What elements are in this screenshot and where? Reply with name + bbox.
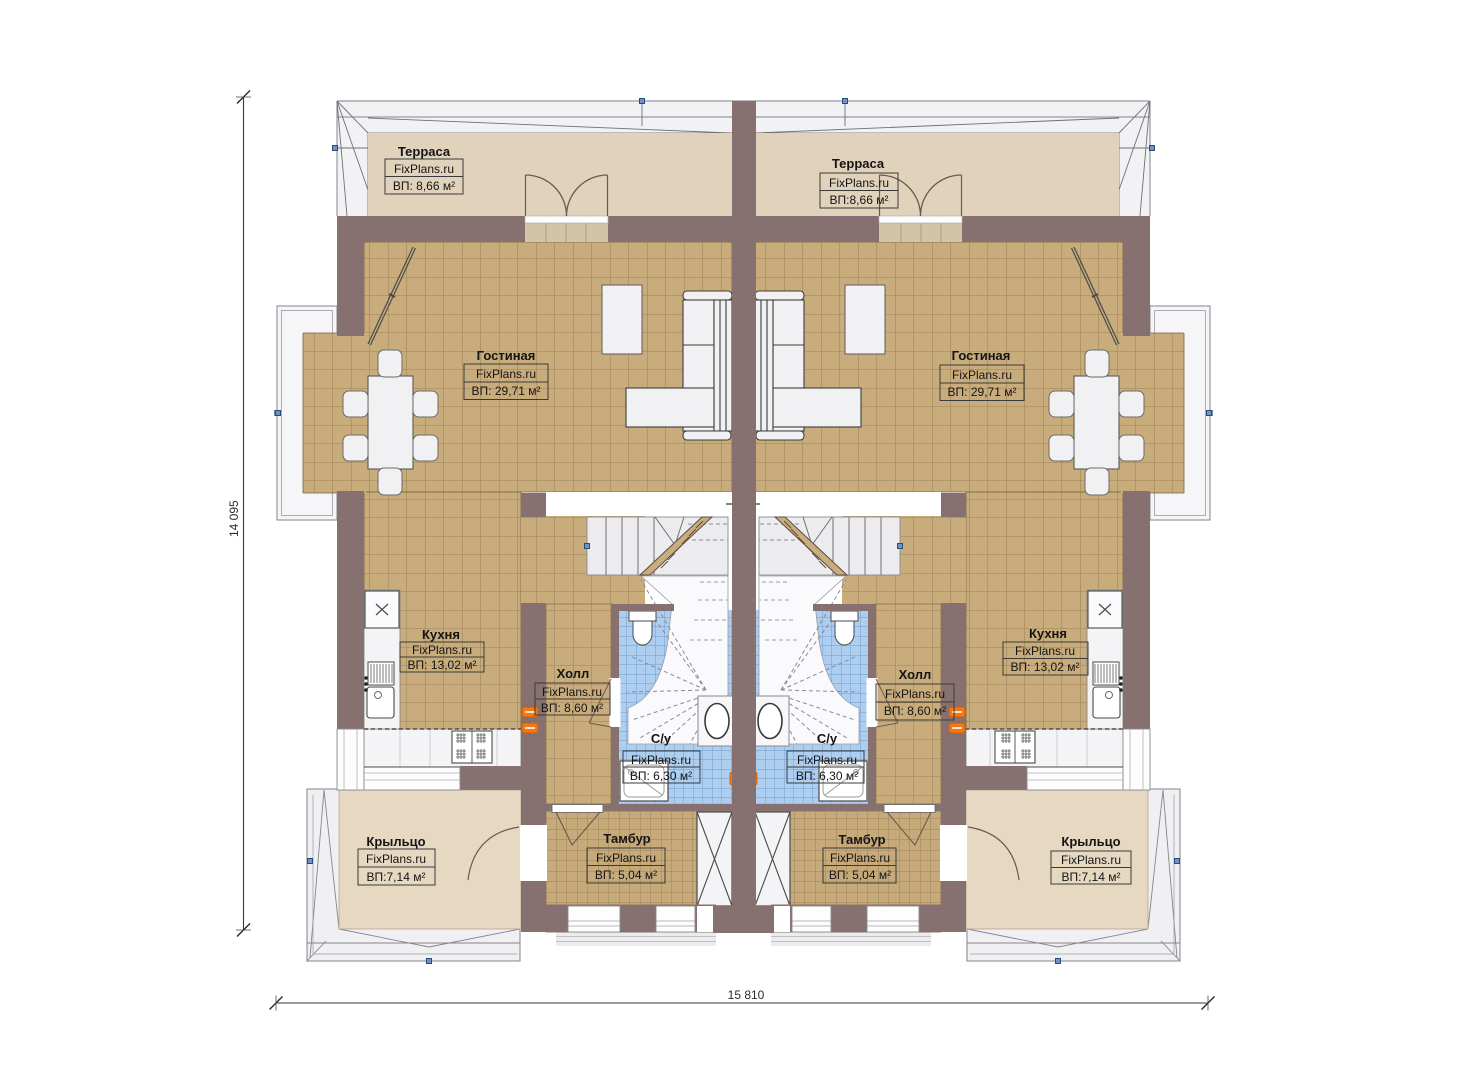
svg-text:ВП: 13,02 м²: ВП: 13,02 м² — [1011, 660, 1080, 674]
svg-text:Кухня: Кухня — [422, 627, 460, 642]
svg-text:Крыльцо: Крыльцо — [366, 834, 425, 849]
svg-text:Холл: Холл — [557, 666, 590, 681]
svg-text:ВП: 5,04 м²: ВП: 5,04 м² — [595, 868, 657, 882]
svg-text:FixPlans.ru: FixPlans.ru — [885, 687, 945, 701]
svg-text:Тамбур: Тамбур — [838, 832, 885, 847]
svg-text:FixPlans.ru: FixPlans.ru — [1015, 644, 1075, 658]
svg-text:ВП: 29,71 м²: ВП: 29,71 м² — [472, 384, 541, 398]
svg-text:FixPlans.ru: FixPlans.ru — [476, 367, 536, 381]
svg-text:ВП: 8,60 м²: ВП: 8,60 м² — [541, 701, 603, 715]
svg-text:FixPlans.ru: FixPlans.ru — [830, 851, 890, 865]
svg-text:FixPlans.ru: FixPlans.ru — [542, 685, 602, 699]
svg-text:Гостиная: Гостиная — [952, 348, 1011, 363]
svg-text:С/у: С/у — [651, 731, 672, 746]
svg-text:ВП: 6,30 м²: ВП: 6,30 м² — [796, 769, 858, 783]
svg-text:FixPlans.ru: FixPlans.ru — [952, 368, 1012, 382]
svg-text:FixPlans.ru: FixPlans.ru — [797, 753, 857, 767]
svg-text:FixPlans.ru: FixPlans.ru — [829, 176, 889, 190]
svg-text:FixPlans.ru: FixPlans.ru — [394, 162, 454, 176]
svg-text:Тамбур: Тамбур — [603, 831, 650, 846]
svg-text:FixPlans.ru: FixPlans.ru — [631, 753, 691, 767]
svg-text:ВП: 8,66 м²: ВП: 8,66 м² — [393, 179, 455, 193]
svg-text:ВП: 6,30 м²: ВП: 6,30 м² — [630, 769, 692, 783]
svg-text:ВП: 5,04 м²: ВП: 5,04 м² — [829, 868, 891, 882]
svg-text:FixPlans.ru: FixPlans.ru — [412, 643, 472, 657]
svg-text:Гостиная: Гостиная — [477, 348, 536, 363]
svg-text:Терраса: Терраса — [398, 144, 451, 159]
svg-text:Крыльцо: Крыльцо — [1061, 834, 1120, 849]
svg-text:14 095: 14 095 — [227, 500, 241, 537]
svg-text:ВП:7,14 м²: ВП:7,14 м² — [1062, 870, 1121, 884]
svg-text:FixPlans.ru: FixPlans.ru — [1061, 853, 1121, 867]
svg-text:ВП: 29,71 м²: ВП: 29,71 м² — [948, 385, 1017, 399]
svg-text:ВП:8,66 м²: ВП:8,66 м² — [830, 193, 889, 207]
svg-text:Холл: Холл — [899, 667, 932, 682]
svg-text:ВП: 13,02 м²: ВП: 13,02 м² — [408, 658, 477, 672]
svg-text:С/у: С/у — [817, 731, 838, 746]
svg-text:ВП: 8,60 м²: ВП: 8,60 м² — [884, 704, 946, 718]
svg-text:Терраса: Терраса — [832, 156, 885, 171]
svg-text:FixPlans.ru: FixPlans.ru — [596, 851, 656, 865]
svg-text:ВП:7,14 м²: ВП:7,14 м² — [367, 870, 426, 884]
svg-text:Кухня: Кухня — [1029, 626, 1067, 641]
svg-text:FixPlans.ru: FixPlans.ru — [366, 852, 426, 866]
svg-text:15 810: 15 810 — [728, 988, 765, 1002]
